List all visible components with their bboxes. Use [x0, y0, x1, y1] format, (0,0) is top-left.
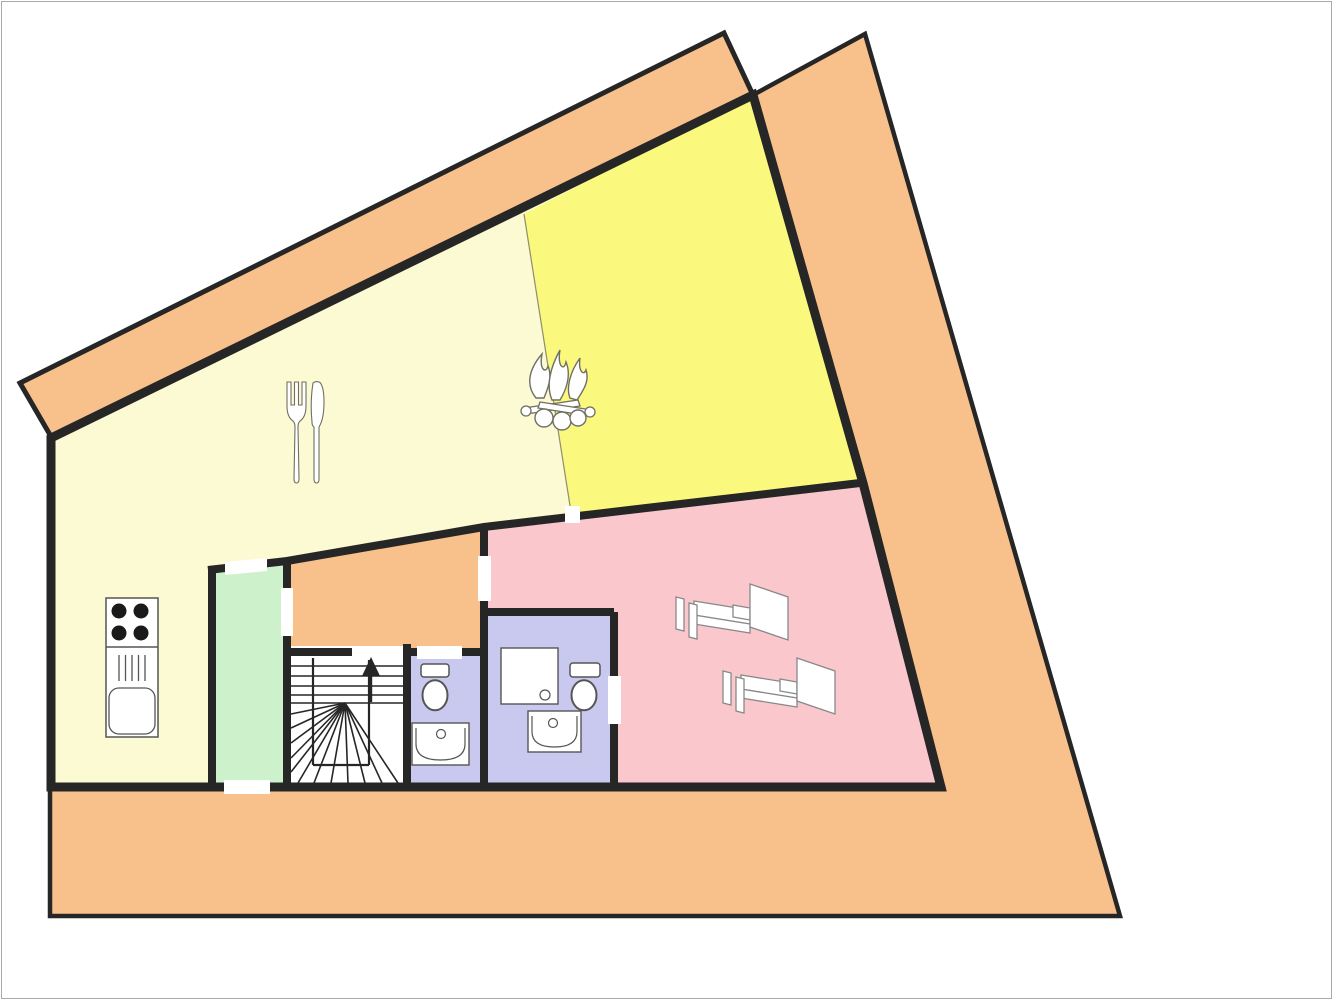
bed-pillow [780, 679, 797, 694]
stove-burner [112, 626, 127, 641]
bed-foot-slat [723, 671, 731, 705]
door-hallway-bedroom-door [478, 556, 491, 601]
fire-stone [553, 412, 571, 430]
stove-burner [112, 604, 127, 619]
stove-burner [134, 604, 149, 619]
sink-faucet [437, 730, 446, 739]
room-storage-room [212, 561, 287, 786]
toilet-tank [570, 663, 600, 677]
sink-counter [528, 711, 581, 752]
bed-foot-slat [689, 603, 697, 639]
fire-log-end [585, 407, 595, 417]
door-bathroom1-door [417, 646, 462, 659]
sink-faucet [549, 719, 558, 728]
bed-foot-slat [676, 597, 684, 631]
toilet-bowl [423, 680, 448, 710]
bed-pillow [733, 605, 750, 620]
fire-stone [570, 410, 586, 426]
floor-plan-svg [0, 0, 1333, 1000]
fire-stone [535, 409, 553, 427]
toilet-bowl [572, 680, 597, 710]
door-stairs-entry-gap [352, 646, 403, 659]
door-bathroom2-door [608, 676, 621, 724]
fire-log-end [521, 406, 531, 416]
shower-drain [540, 690, 550, 700]
door-storage-terrace-door [224, 780, 270, 794]
toilet-tank [421, 664, 449, 677]
door-storage-hallway-door [281, 588, 293, 636]
door-living-bedroom-door [565, 506, 580, 523]
kitchen-unit [106, 598, 158, 737]
kitchen-sink [109, 688, 155, 734]
stove-burner [134, 626, 149, 641]
floor-plan [0, 0, 1333, 1000]
bed-foot-slat [736, 677, 744, 713]
